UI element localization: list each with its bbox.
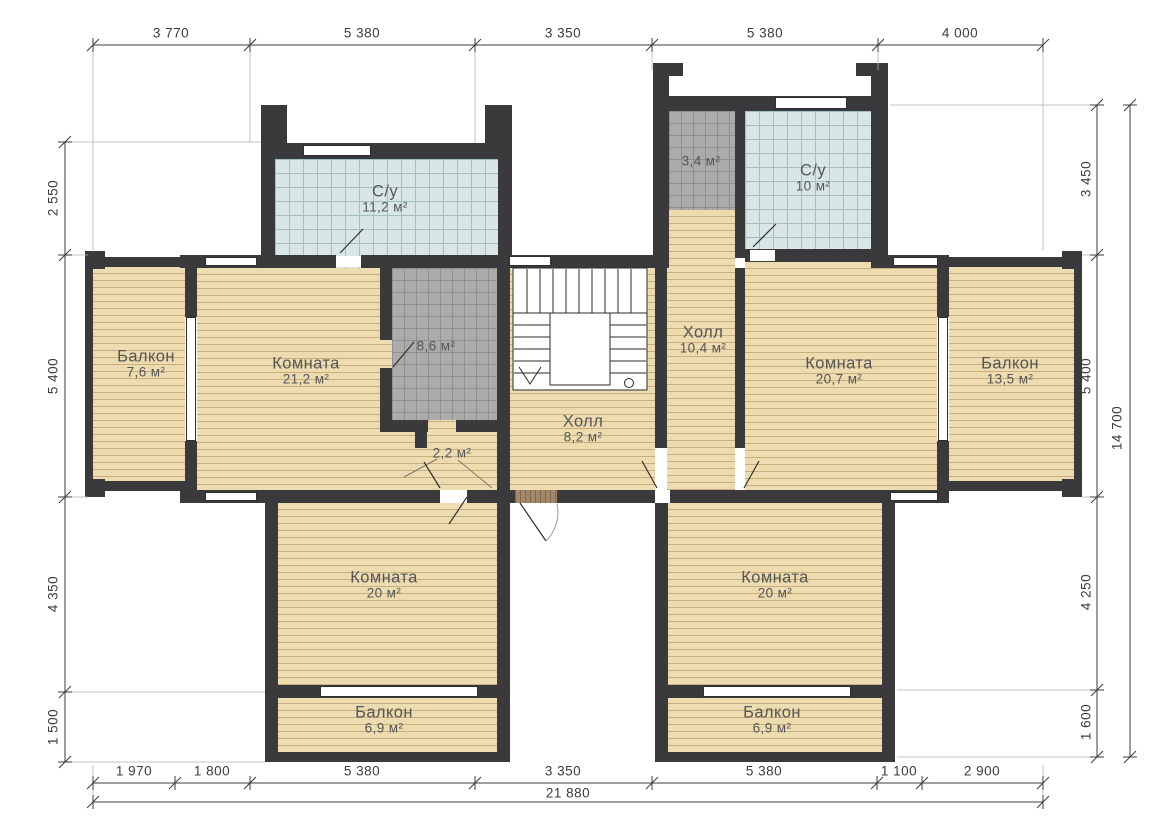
room-name: Комната — [350, 569, 417, 586]
room-name: Комната — [805, 355, 872, 372]
room-name: С/у — [800, 162, 826, 179]
room-name: Балкон — [981, 355, 1039, 372]
dim-right-1: 5 400 — [1079, 358, 1094, 394]
room-name: Балкон — [355, 704, 413, 721]
room-name: Балкон — [117, 348, 175, 365]
dim-left-3: 1 500 — [46, 709, 61, 745]
room-label-balcony-right: Балкон 13,5 м² — [981, 355, 1039, 386]
leader-lines — [404, 459, 492, 488]
room-label-hall-center: Холл 8,2 м² — [563, 413, 604, 444]
dim-bottom-0: 1 970 — [116, 764, 152, 779]
room-label-utility-top: 3,4 м² — [682, 154, 721, 169]
room-label-room-bottom-right: Комната 20 м² — [741, 569, 808, 600]
dim-left-0: 2 550 — [46, 180, 61, 216]
room-label-bath-left: С/у 11,2 м² — [362, 183, 408, 214]
room-label-hall-upper: Холл 10,4 м² — [680, 324, 727, 355]
door-swing-arc — [546, 504, 558, 541]
dim-right-2: 4 250 — [1079, 574, 1094, 610]
room-name: Балкон — [743, 704, 801, 721]
dim-right-total: 14 700 — [1110, 406, 1125, 450]
room-name: Комната — [741, 569, 808, 586]
room-label-balcony-left: Балкон 7,6 м² — [117, 348, 175, 379]
dim-top-4: 4 000 — [942, 26, 978, 41]
room-label-room-bottom-left: Комната 20 м² — [350, 569, 417, 600]
dim-left-1: 5 400 — [46, 358, 61, 394]
room-name: Холл — [563, 413, 604, 430]
dim-top-2: 3 350 — [545, 26, 581, 41]
stair-pole — [625, 379, 634, 388]
dim-bottom-4: 5 380 — [746, 764, 782, 779]
room-area: 6,9 м² — [365, 722, 404, 736]
dim-top-1: 5 380 — [344, 26, 380, 41]
room-name: С/у — [372, 183, 398, 200]
room-area: 20 м² — [367, 587, 402, 601]
dim-top-3: 5 380 — [747, 26, 783, 41]
room-label-room-right: Комната 20,7 м² — [805, 355, 872, 386]
room-label-bath-right: С/у 10 м² — [796, 162, 831, 193]
staircase — [513, 268, 647, 390]
dim-right-0: 3 450 — [1079, 161, 1094, 197]
room-area: 8,2 м² — [564, 431, 603, 445]
dim-bottom-total: 21 880 — [546, 786, 590, 801]
room-area: 6,9 м² — [753, 722, 792, 736]
dim-bottom-6: 2 900 — [964, 764, 1000, 779]
floor-plan: С/у 11,2 м² 3,4 м² С/у 10 м² Балкон 7,6 … — [0, 0, 1169, 835]
dim-left-2: 4 350 — [46, 576, 61, 612]
room-label-room-left: Комната 21,2 м² — [272, 355, 339, 386]
dim-bottom-3: 3 350 — [545, 764, 581, 779]
dim-bottom-5: 1 100 — [881, 764, 917, 779]
room-area: 11,2 м² — [362, 201, 408, 215]
room-area: 13,5 м² — [987, 373, 1034, 387]
room-name: Холл — [683, 324, 724, 341]
room-label-vestibule: 2,2 м² — [433, 446, 472, 461]
dim-right-3: 1 600 — [1079, 704, 1094, 740]
room-name: Комната — [272, 355, 339, 372]
room-area: 7,6 м² — [127, 366, 166, 380]
room-area: 20 м² — [758, 587, 793, 601]
room-area: 21,2 м² — [283, 373, 330, 387]
room-label-balcony-bottom-left: Балкон 6,9 м² — [355, 704, 413, 735]
room-area: 10,4 м² — [680, 342, 727, 356]
room-label-dressing: 8,6 м² — [417, 339, 456, 354]
room-label-balcony-bottom-right: Балкон 6,9 м² — [743, 704, 801, 735]
dim-top-0: 3 770 — [153, 26, 189, 41]
dim-bottom-2: 5 380 — [344, 764, 380, 779]
room-area: 20,7 м² — [816, 373, 863, 387]
dim-bottom-1: 1 800 — [194, 764, 230, 779]
room-area: 10 м² — [796, 180, 831, 194]
